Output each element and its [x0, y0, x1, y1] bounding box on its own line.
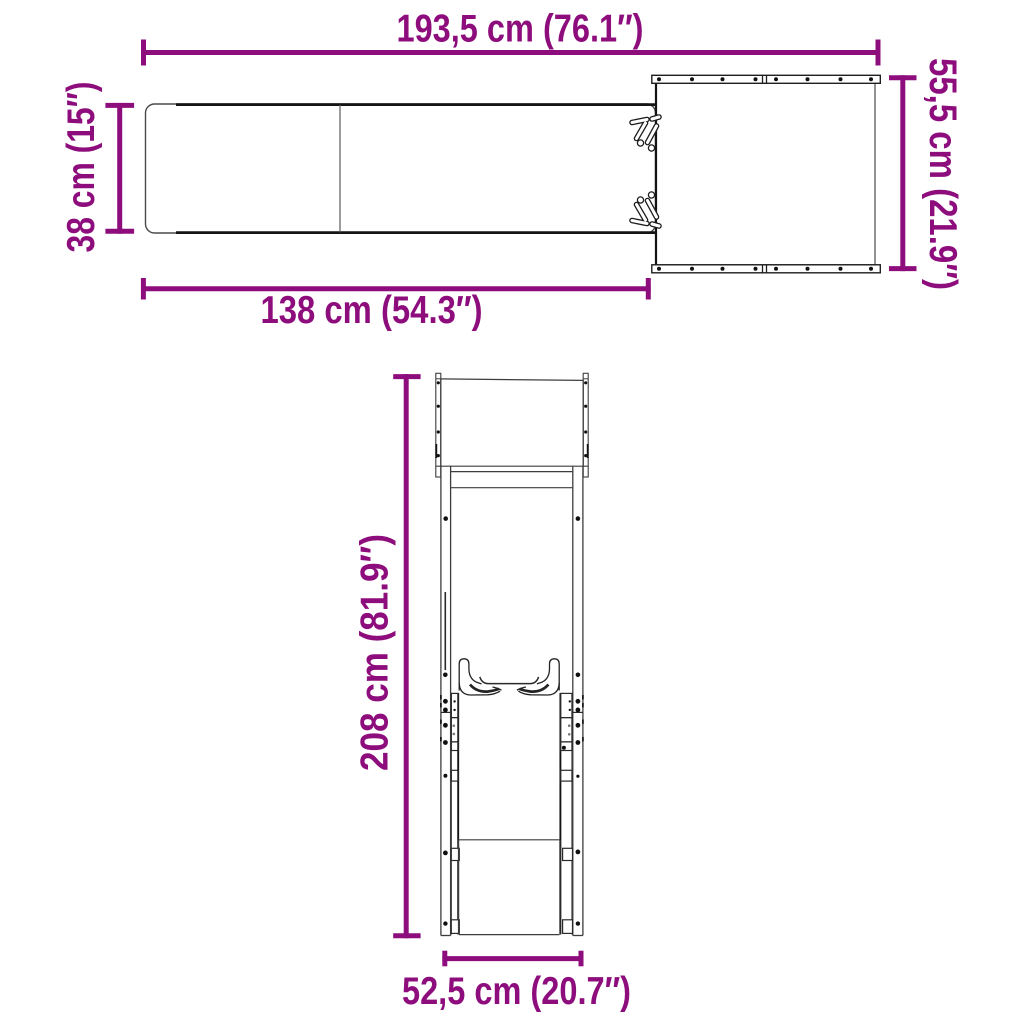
svg-text:38 cm (15″): 38 cm (15″) [60, 82, 103, 253]
svg-text:208 cm (81.9″): 208 cm (81.9″) [354, 534, 397, 771]
svg-text:55,5 cm (21.9″): 55,5 cm (21.9″) [921, 58, 964, 290]
svg-text:138 cm (54.3″): 138 cm (54.3″) [261, 289, 483, 332]
svg-text:52,5 cm (20.7″): 52,5 cm (20.7″) [402, 970, 631, 1013]
svg-text:193,5 cm (76.1″): 193,5 cm (76.1″) [397, 8, 644, 51]
